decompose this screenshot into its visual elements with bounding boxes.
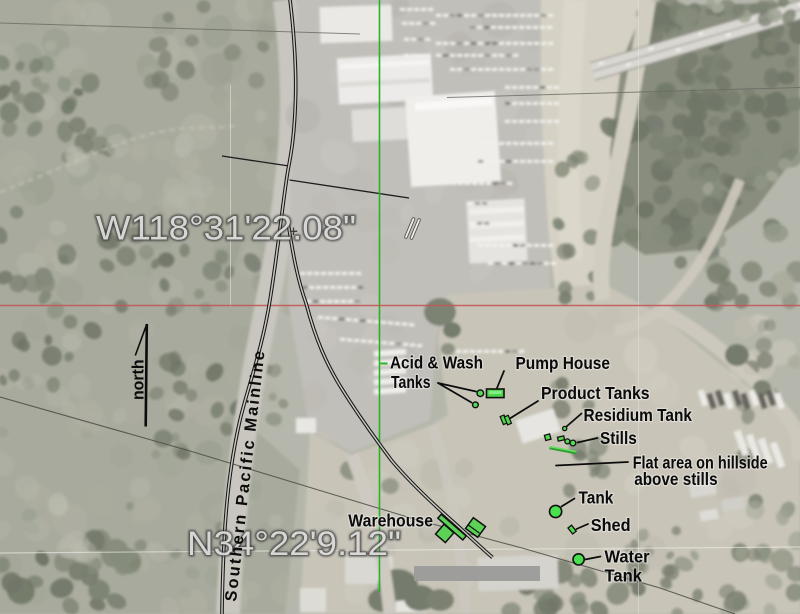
svg-text:Stills: Stills xyxy=(600,428,637,448)
svg-text:Pump House: Pump House xyxy=(516,353,611,373)
svg-text:above stills: above stills xyxy=(634,469,718,489)
svg-text:Residium Tank: Residium Tank xyxy=(584,405,693,425)
svg-text:Water: Water xyxy=(605,547,650,567)
svg-text:Tank: Tank xyxy=(605,566,643,586)
svg-text:Acid & Wash: Acid & Wash xyxy=(390,353,483,373)
svg-text:N34°22'9.12": N34°22'9.12" xyxy=(187,525,401,563)
svg-text:W118°31'22.08": W118°31'22.08" xyxy=(96,210,356,248)
svg-text:Warehouse: Warehouse xyxy=(348,511,433,531)
svg-text:Tanks: Tanks xyxy=(391,372,431,392)
svg-text:north: north xyxy=(130,360,148,401)
svg-text:Tank: Tank xyxy=(579,488,614,508)
svg-text:Shed: Shed xyxy=(591,515,631,535)
svg-text:Product Tanks: Product Tanks xyxy=(541,383,650,403)
